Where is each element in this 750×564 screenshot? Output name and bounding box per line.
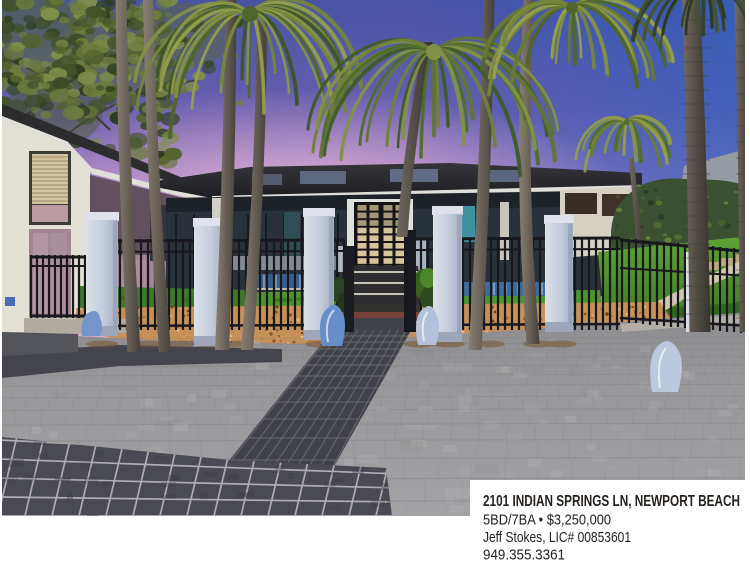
svg-text:Jeff Stokes, LIC# 00853601: Jeff Stokes, LIC# 00853601 <box>483 529 631 546</box>
svg-text:949.355.3361: 949.355.3361 <box>483 547 565 564</box>
svg-text:2101 INDIAN SPRINGS LN, NEWPOR: 2101 INDIAN SPRINGS LN, NEWPORT BEACH <box>483 493 740 510</box>
svg-text:5BD/7BA • $3,250,000: 5BD/7BA • $3,250,000 <box>483 512 611 529</box>
